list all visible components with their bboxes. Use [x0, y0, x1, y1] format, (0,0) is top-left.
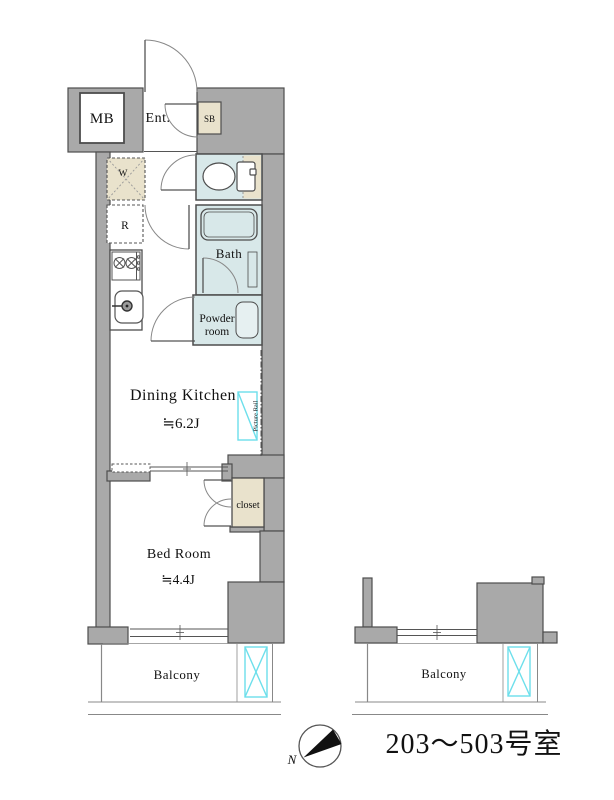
bed-room-label: Bed Room: [147, 547, 211, 562]
kitchen-unit: [110, 250, 143, 330]
bath-label: Bath: [216, 246, 243, 261]
closet-label: closet: [236, 500, 260, 511]
unit-number-caption: 203〜503号室: [385, 728, 562, 760]
vanity-sink-icon: [236, 302, 258, 338]
wall-pillar-bottom-right: [228, 582, 284, 643]
fragment-wall-right-block: [477, 583, 543, 643]
meter-box-label: MB: [90, 111, 114, 127]
powder-room-label-2: room: [205, 326, 229, 338]
dining-size-label: ≒6.2J: [162, 416, 199, 432]
compass-icon: N: [287, 725, 342, 767]
balcony-left-label: Balcony: [154, 667, 201, 682]
floor-plan-page: N MB Ent. SB W R Bath Powder room Dining…: [0, 0, 614, 800]
wall-above-closet: [228, 455, 284, 478]
wall-below-closet: [260, 531, 284, 582]
wall-bottom-left-block: [88, 627, 128, 644]
faucet-dot-icon: [126, 305, 129, 308]
entrance-label: Ent.: [146, 111, 171, 126]
balcony-right-label: Balcony: [421, 667, 466, 681]
wall-right: [262, 154, 284, 478]
wall-closet-right: [264, 478, 284, 531]
refrigerator-label: R: [121, 220, 129, 232]
fragment-wall-left-block: [355, 627, 397, 643]
fragment-wall-left-bar: [363, 578, 372, 627]
shoe-box-label: SB: [204, 114, 215, 124]
compass-north-label: N: [287, 752, 298, 767]
toilet-fixture-icon: [203, 162, 256, 191]
fragment-wall-right-step: [532, 577, 544, 584]
picture-rail-label: Picture Rail: [253, 400, 260, 431]
wall-closet-bottom: [230, 527, 264, 532]
dining-kitchen-label: Dining Kitchen: [130, 387, 236, 404]
wall-partition-stub: [107, 471, 150, 481]
entrance-door-arc: [145, 40, 197, 92]
powder-room-label-1: Powder: [199, 313, 234, 325]
washer-label: W: [119, 169, 128, 179]
floor-plan-svg: N MB Ent. SB W R Bath Powder room Dining…: [0, 0, 614, 800]
bed-size-label: ≒4.4J: [161, 572, 194, 587]
fragment-wall-right-foot: [543, 632, 557, 643]
pocket-door-dashed: [112, 464, 150, 472]
